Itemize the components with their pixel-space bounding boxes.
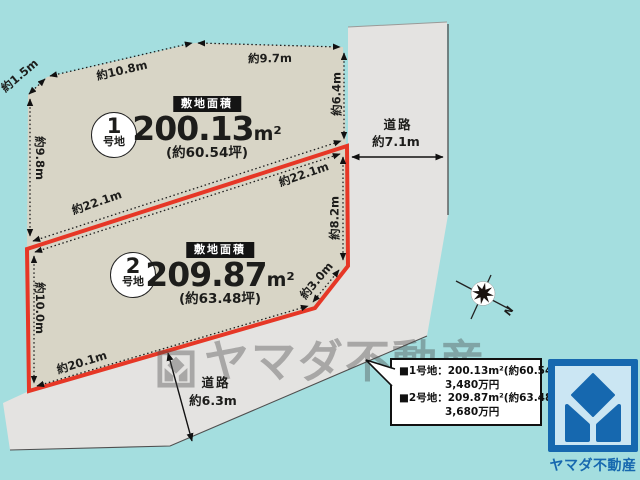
land-plot-diagram: ヤマダ不動産 1 号地 敷地面積 200.13m² (約60.54坪) 2 号地… bbox=[0, 0, 640, 480]
brand-logo-text: ヤマダ不動産 bbox=[548, 455, 638, 475]
price-info-pointer bbox=[0, 0, 640, 480]
brand-logo-icon bbox=[548, 359, 638, 452]
brand-logo: ヤマダ不動産 bbox=[548, 359, 638, 475]
